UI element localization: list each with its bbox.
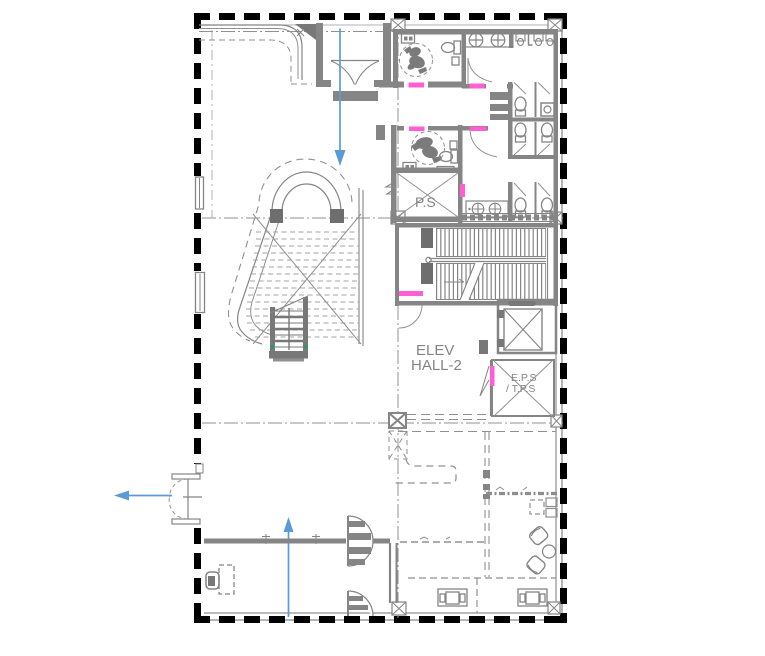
svg-text:HALL-2: HALL-2	[411, 357, 462, 374]
svg-text:/ T.P.S: / T.P.S	[506, 383, 535, 395]
svg-text:P.S: P.S	[415, 194, 436, 210]
